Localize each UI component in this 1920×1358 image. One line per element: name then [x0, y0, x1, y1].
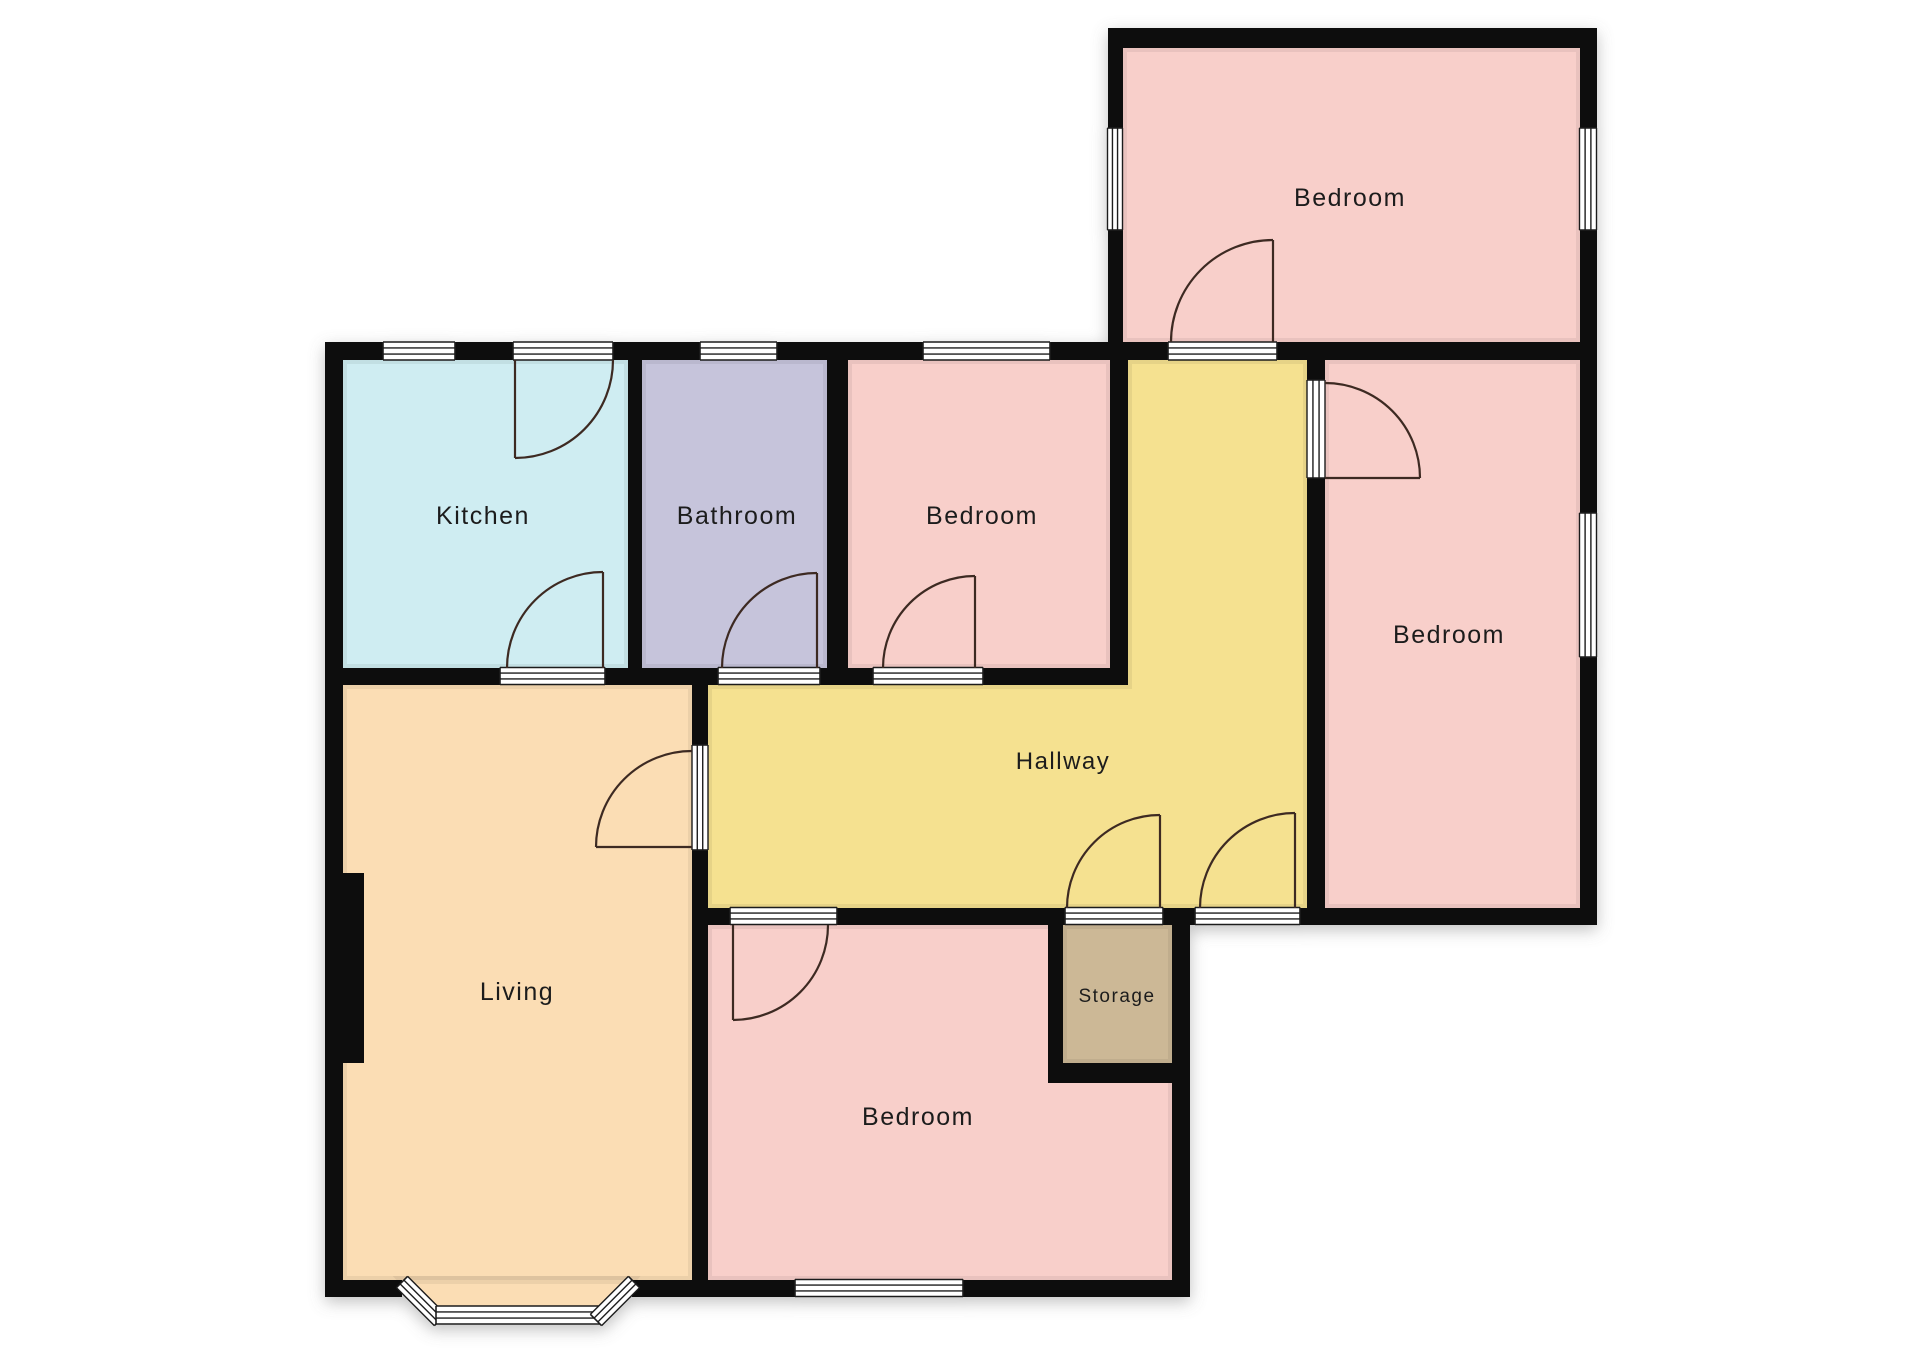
room-label-storage: Storage — [1078, 986, 1155, 1007]
doorway-front-entrance-icon — [1195, 908, 1300, 925]
doorway-storage-icon — [1065, 908, 1163, 925]
doorway-bedroom-middle-icon — [873, 668, 983, 685]
doorway-kitchen-exterior-icon — [513, 342, 613, 360]
room-label-bathroom: Bathroom — [677, 502, 797, 530]
room-label-bedroom-bottom: Bedroom — [862, 1103, 974, 1131]
window-kitchen-icon — [383, 342, 455, 360]
room-label-bedroom-right: Bedroom — [1393, 621, 1505, 649]
wall-segment — [1048, 1063, 1190, 1083]
room-label-bedroom-top: Bedroom — [1294, 184, 1406, 212]
floorplan-page: BedroomKitchenBathroomBedroomBedroomHall… — [0, 0, 1920, 1358]
room-label-hallway: Hallway — [1016, 748, 1111, 775]
doorway-living-icon — [692, 745, 708, 850]
doorway-bedroom-right-icon — [1307, 380, 1325, 478]
wall-segment — [340, 873, 364, 1063]
window-bay-center-icon — [436, 1306, 600, 1324]
wall-segment — [1172, 908, 1190, 1297]
doorway-bathroom-icon — [718, 668, 820, 685]
window-bedroom-top-right-icon — [1580, 128, 1597, 230]
wall-segment — [1048, 925, 1063, 1083]
doorway-bedroom-bottom-icon — [730, 908, 837, 925]
doorway-bedroom-top-icon — [1168, 342, 1277, 360]
window-bedroom-bottom-icon — [795, 1280, 963, 1297]
wall-segment — [628, 358, 642, 668]
window-bedroom-right-icon — [1580, 513, 1597, 657]
room-label-bedroom-middle: Bedroom — [926, 502, 1038, 530]
window-bedroom-top-left-icon — [1108, 128, 1123, 230]
room-label-living: Living — [480, 978, 554, 1006]
wall-segment — [1108, 28, 1597, 48]
doorway-kitchen-living-icon — [500, 668, 605, 685]
wall-segment — [325, 342, 343, 1297]
wall-segment — [827, 358, 848, 668]
wall-segment — [1110, 358, 1128, 685]
room-label-kitchen: Kitchen — [436, 502, 530, 530]
wall-segment — [325, 1280, 402, 1297]
building: BedroomKitchenBathroomBedroomBedroomHall… — [325, 28, 1597, 1326]
floorplan-canvas: BedroomKitchenBathroomBedroomBedroomHall… — [0, 0, 1920, 1358]
window-bedroom-middle-icon — [923, 342, 1050, 360]
window-bathroom-icon — [700, 342, 777, 360]
